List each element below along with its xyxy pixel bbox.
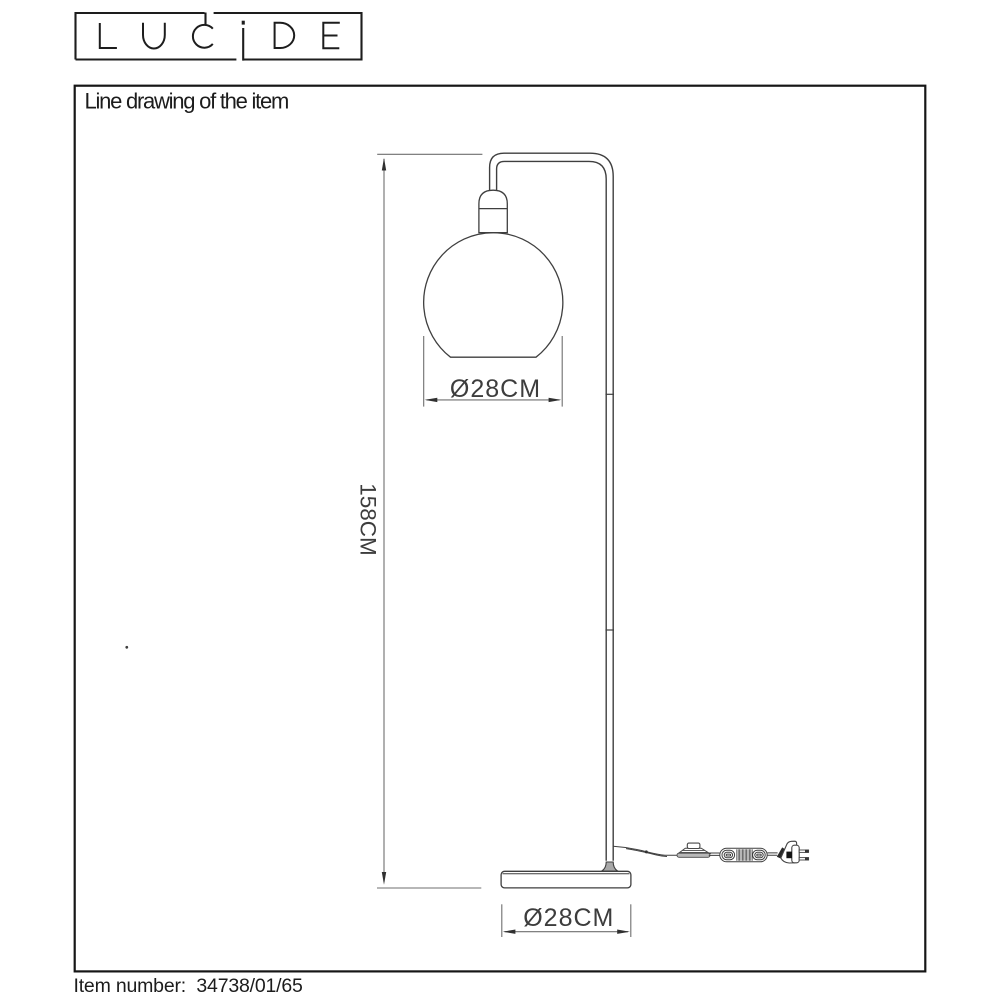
svg-text:Item number: 34738/01/65: Item number: 34738/01/65 [74,975,304,997]
svg-text:Ø28CM: Ø28CM [523,904,614,932]
svg-text:Line drawing of the item: Line drawing of the item [85,88,289,113]
svg-text:158CM: 158CM [356,483,381,556]
svg-text:Ø28CM: Ø28CM [450,375,541,403]
